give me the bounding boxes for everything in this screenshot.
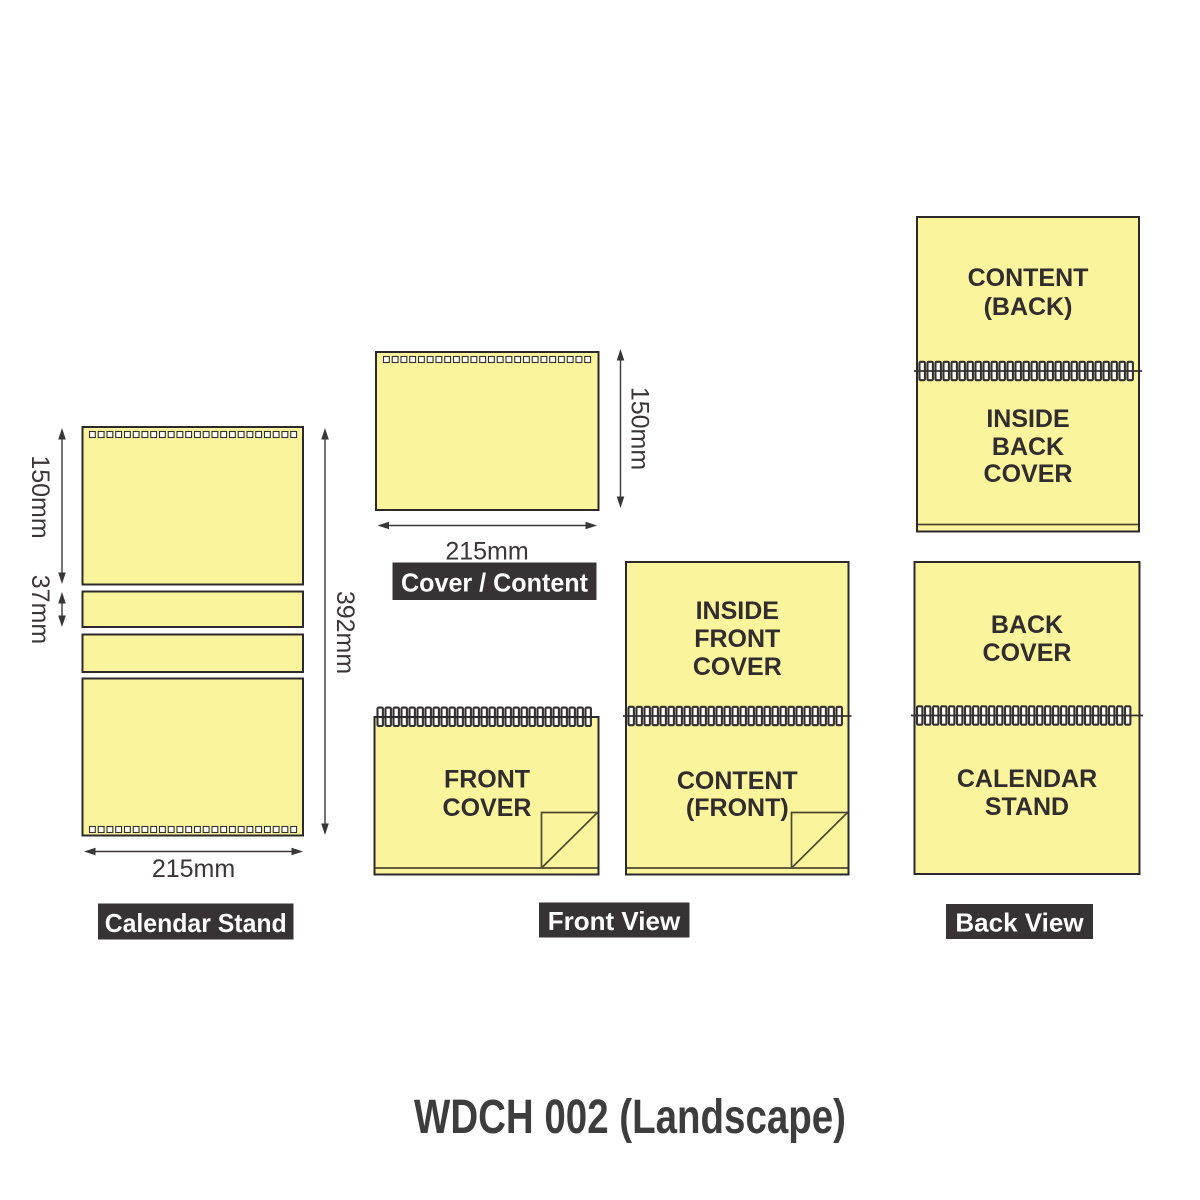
svg-text:WDCH 002 (Landscape): WDCH 002 (Landscape): [414, 1091, 846, 1144]
svg-text:INSIDE: INSIDE: [696, 597, 779, 625]
svg-text:BACK: BACK: [992, 433, 1064, 461]
svg-text:150mm: 150mm: [26, 455, 54, 538]
svg-text:Cover / Content: Cover / Content: [401, 568, 588, 598]
svg-text:COVER: COVER: [443, 794, 532, 822]
svg-text:BACK: BACK: [991, 611, 1063, 639]
svg-text:CONTENT: CONTENT: [677, 767, 798, 795]
svg-text:FRONT: FRONT: [694, 625, 780, 653]
svg-text:INSIDE: INSIDE: [986, 405, 1069, 433]
svg-text:COVER: COVER: [984, 460, 1073, 488]
svg-text:(BACK): (BACK): [984, 293, 1073, 321]
svg-text:215mm: 215mm: [152, 855, 235, 883]
svg-text:COVER: COVER: [693, 653, 782, 681]
svg-text:215mm: 215mm: [445, 538, 528, 566]
svg-text:COVER: COVER: [983, 639, 1072, 667]
svg-text:150mm: 150mm: [626, 387, 654, 470]
svg-text:392mm: 392mm: [331, 591, 359, 674]
svg-text:(FRONT): (FRONT): [686, 794, 789, 822]
svg-text:Front View: Front View: [548, 906, 681, 936]
svg-text:FRONT: FRONT: [444, 766, 530, 794]
svg-text:CALENDAR: CALENDAR: [957, 765, 1097, 793]
svg-text:STAND: STAND: [985, 793, 1069, 821]
svg-text:Calendar Stand: Calendar Stand: [105, 908, 287, 938]
svg-text:37mm: 37mm: [26, 575, 54, 644]
svg-text:Back View: Back View: [955, 908, 1084, 938]
svg-text:CONTENT: CONTENT: [968, 264, 1089, 292]
